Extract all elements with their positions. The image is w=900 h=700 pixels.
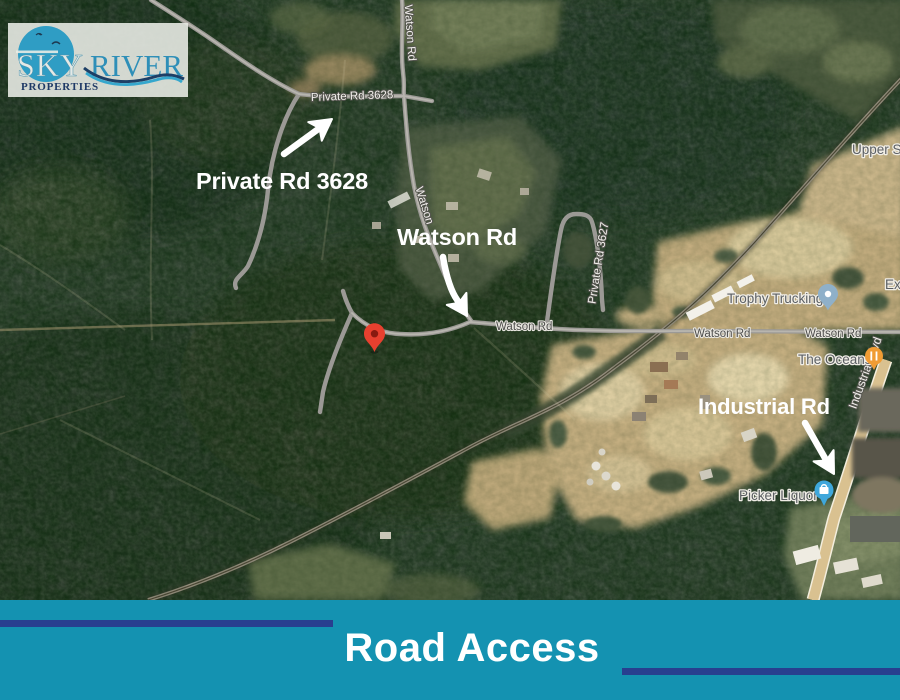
svg-text:Watson Rd: Watson Rd [397,224,517,250]
svg-text:Picker Liquor: Picker Liquor [739,488,818,503]
svg-text:SKY: SKY [17,47,84,83]
svg-text:Upper Str: Upper Str [852,142,900,157]
svg-text:PROPERTIES: PROPERTIES [21,81,99,93]
svg-text:Private Rd 3628: Private Rd 3628 [196,168,368,194]
svg-text:Watson Rd: Watson Rd [694,328,750,340]
svg-text:Watson Rd: Watson Rd [496,321,552,333]
svg-text:Watson Rd: Watson Rd [805,328,861,340]
svg-text:Trophy Trucking: Trophy Trucking [727,291,823,306]
svg-text:Exx: Exx [885,277,900,292]
svg-text:The Oceans: The Oceans [798,352,872,367]
svg-text:Industrial Rd: Industrial Rd [698,394,830,419]
